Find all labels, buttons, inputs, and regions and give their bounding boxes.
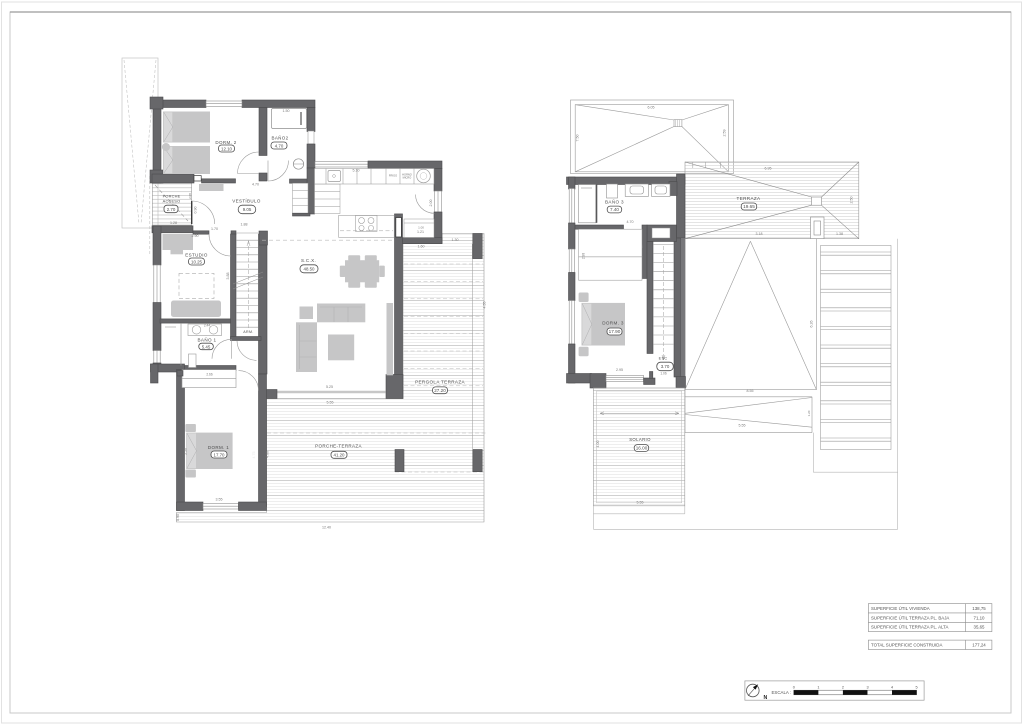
svg-text:DORM. 3: DORM. 3 xyxy=(602,321,624,326)
svg-text:1: 1 xyxy=(817,686,819,690)
svg-text:ESC: ESC xyxy=(659,357,668,361)
svg-text:DORM. 2: DORM. 2 xyxy=(215,140,236,145)
svg-text:2.70: 2.70 xyxy=(167,207,176,212)
svg-text:1.50: 1.50 xyxy=(283,109,290,113)
svg-text:16.00: 16.00 xyxy=(636,446,648,451)
svg-text:2.44: 2.44 xyxy=(204,323,210,327)
svg-text:48.50: 48.50 xyxy=(304,266,316,271)
svg-text:MICRO: MICRO xyxy=(403,176,412,180)
svg-text:1.21: 1.21 xyxy=(417,230,424,234)
svg-text:ACCESO: ACCESO xyxy=(163,199,181,204)
svg-text:5.55: 5.55 xyxy=(327,401,334,405)
svg-text:SOLARIO: SOLARIO xyxy=(629,437,651,442)
svg-text:4.70: 4.70 xyxy=(627,220,634,224)
svg-text:PERGOLA TERRAZA: PERGOLA TERRAZA xyxy=(415,380,465,385)
svg-text:5.45: 5.45 xyxy=(202,344,211,349)
svg-text:5: 5 xyxy=(916,686,918,690)
svg-text:5.50: 5.50 xyxy=(183,448,187,455)
svg-text:ESCALA :: ESCALA : xyxy=(772,690,792,695)
svg-text:PORCHE-TERRAZA: PORCHE-TERRAZA xyxy=(315,444,362,449)
svg-text:2.59: 2.59 xyxy=(723,130,727,137)
svg-text:10.25: 10.25 xyxy=(191,259,203,264)
svg-text:5.55: 5.55 xyxy=(637,501,644,505)
svg-text:41.20: 41.20 xyxy=(334,453,346,458)
svg-text:0.90: 0.90 xyxy=(176,514,180,521)
svg-text:1.28: 1.28 xyxy=(170,221,177,225)
svg-text:3.70: 3.70 xyxy=(661,364,670,369)
svg-text:1.60: 1.60 xyxy=(418,245,425,249)
svg-text:DORM. 1: DORM. 1 xyxy=(208,445,229,450)
svg-text:4.55: 4.55 xyxy=(483,302,487,309)
svg-text:2.95: 2.95 xyxy=(616,368,623,372)
svg-text:ARM.: ARM. xyxy=(243,330,253,334)
svg-text:4.00: 4.00 xyxy=(596,441,600,448)
svg-text:S.C.X.: S.C.X. xyxy=(301,258,316,263)
svg-text:VESTÍBULO: VESTÍBULO xyxy=(232,198,261,204)
svg-text:6.05: 6.05 xyxy=(648,106,655,110)
svg-text:SUPERFICIE ÚTIL TERRAZA PL. BA: SUPERFICIE ÚTIL TERRAZA PL. BAJA xyxy=(871,615,949,620)
svg-text:4: 4 xyxy=(891,686,893,690)
svg-text:7.50: 7.50 xyxy=(576,135,580,142)
svg-text:19.65: 19.65 xyxy=(743,204,755,209)
svg-text:BAÑO 3: BAÑO 3 xyxy=(605,199,624,205)
svg-text:BAÑO2: BAÑO2 xyxy=(271,135,288,141)
svg-text:17.90: 17.90 xyxy=(609,329,621,334)
svg-text:SUPERFICIE ÚTIL VIVIENDA: SUPERFICIE ÚTIL VIVIENDA xyxy=(871,606,930,611)
svg-text:2.50: 2.50 xyxy=(850,197,854,204)
svg-text:8.55: 8.55 xyxy=(747,389,754,393)
svg-text:3.88: 3.88 xyxy=(226,273,230,280)
svg-text:2: 2 xyxy=(842,686,844,690)
svg-text:138,75: 138,75 xyxy=(972,606,986,611)
svg-text:5.10: 5.10 xyxy=(353,169,360,173)
svg-text:71,10: 71,10 xyxy=(974,615,986,620)
svg-text:0: 0 xyxy=(793,686,795,690)
svg-text:27.20: 27.20 xyxy=(434,388,446,393)
svg-text:3.55: 3.55 xyxy=(216,497,223,501)
svg-text:5.55: 5.55 xyxy=(739,423,746,427)
svg-text:35,65: 35,65 xyxy=(974,625,986,630)
svg-text:2.98: 2.98 xyxy=(582,253,586,259)
svg-text:FRIGO: FRIGO xyxy=(389,174,397,178)
svg-text:12.10: 12.10 xyxy=(221,146,233,151)
svg-text:4.70: 4.70 xyxy=(252,183,259,187)
svg-text:12.40: 12.40 xyxy=(322,526,331,530)
svg-text:9.05: 9.05 xyxy=(243,207,252,212)
svg-text:1.88: 1.88 xyxy=(241,222,248,226)
svg-text:2.00: 2.00 xyxy=(429,200,433,207)
svg-text:2.08: 2.08 xyxy=(188,193,192,199)
svg-text:1.30: 1.30 xyxy=(452,238,459,242)
svg-text:6.95: 6.95 xyxy=(765,166,772,170)
svg-text:6.26: 6.26 xyxy=(810,321,814,328)
svg-text:4.75: 4.75 xyxy=(252,452,256,459)
svg-text:1.38: 1.38 xyxy=(836,232,843,236)
svg-text:3.18: 3.18 xyxy=(756,232,763,236)
svg-text:1.70: 1.70 xyxy=(211,227,218,231)
svg-text:2.66: 2.66 xyxy=(206,373,212,377)
svg-text:0.90: 0.90 xyxy=(194,207,198,214)
svg-text:4.70: 4.70 xyxy=(275,143,284,148)
svg-text:3: 3 xyxy=(866,686,868,690)
svg-text:17.70: 17.70 xyxy=(214,452,226,457)
svg-text:BAÑO 1: BAÑO 1 xyxy=(198,337,217,343)
svg-text:7.40: 7.40 xyxy=(610,207,619,212)
svg-text:1.20: 1.20 xyxy=(807,410,811,416)
svg-text:1.06: 1.06 xyxy=(660,372,666,376)
svg-text:177,24: 177,24 xyxy=(972,642,986,647)
svg-text:2.90: 2.90 xyxy=(192,234,199,238)
svg-text:5.25: 5.25 xyxy=(326,385,333,389)
svg-text:TERRAZA: TERRAZA xyxy=(737,196,761,201)
svg-text:4.00: 4.00 xyxy=(265,451,269,458)
svg-text:N: N xyxy=(764,695,768,701)
svg-text:1.00: 1.00 xyxy=(418,226,424,230)
svg-text:SUPERFICIE ÚTIL TERRAZA PL. AL: SUPERFICIE ÚTIL TERRAZA PL. ALTA xyxy=(871,625,948,630)
svg-text:ESTUDIO: ESTUDIO xyxy=(185,253,208,258)
svg-text:TOTAL SUPERFICIE CONSTRUIDA: TOTAL SUPERFICIE CONSTRUIDA xyxy=(871,642,942,647)
